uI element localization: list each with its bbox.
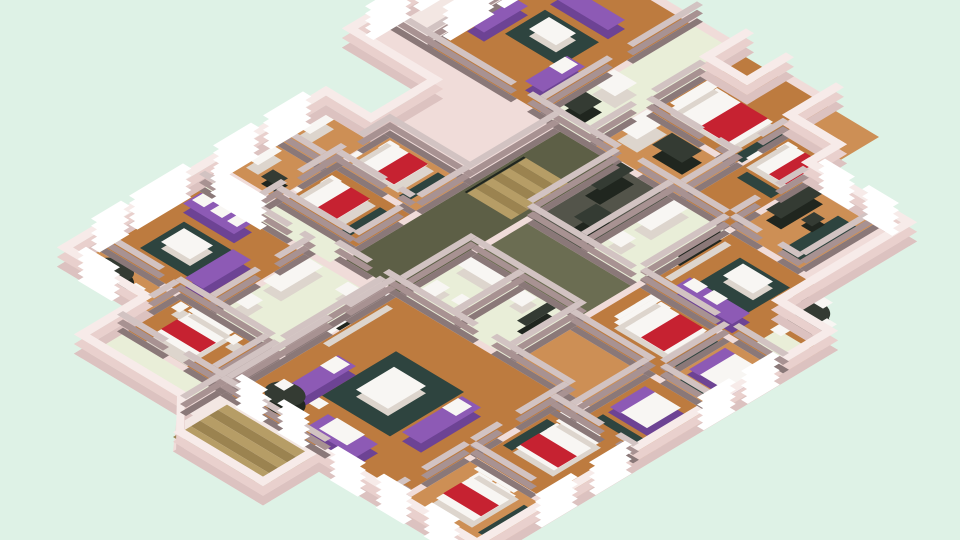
floor-plan-image <box>0 0 960 540</box>
floor-plan-render <box>0 0 960 540</box>
